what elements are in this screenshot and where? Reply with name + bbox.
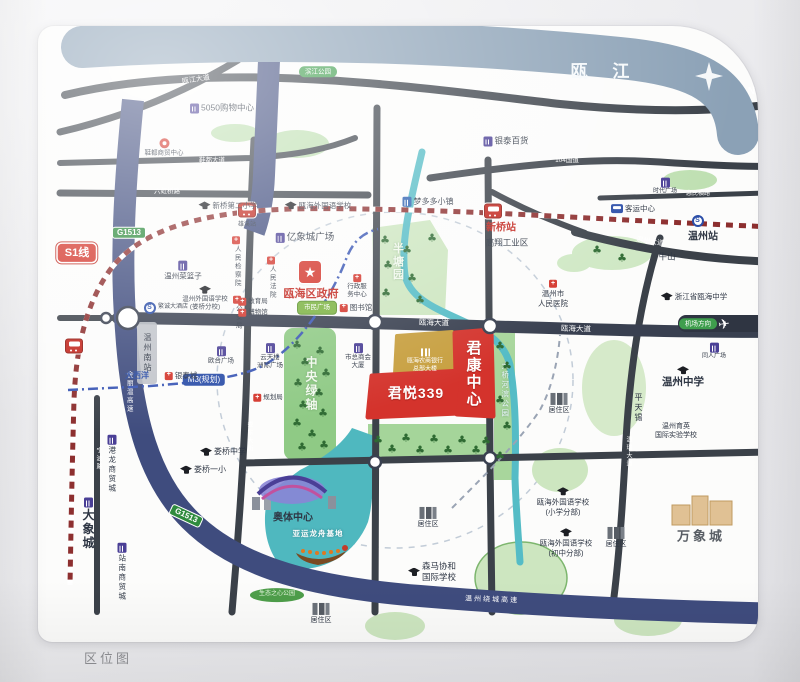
poi-planning-bureau: 规划局: [253, 394, 283, 402]
residential-label-3: 居住区: [418, 507, 439, 529]
road-label-ouhai-ave-2: 瓯海大道: [561, 324, 591, 335]
road-label-huimin: 惠民横路: [686, 191, 710, 199]
tree-icon: ♣: [429, 433, 439, 446]
train-icon: [65, 339, 83, 354]
poi-5050-mall: 5050购物中心: [190, 102, 254, 113]
tree-icon: ♣: [443, 444, 453, 457]
b-icon: [660, 178, 669, 188]
poi-xinqiao-no2-primary: 新桥第二小学: [199, 201, 258, 211]
olympic-center-label: 奥体中心: [273, 512, 313, 525]
airplane-icon: ✈: [717, 314, 731, 334]
poi-pingtianxi: 平天锡: [634, 393, 642, 423]
tree-icon: ♣: [298, 399, 308, 412]
poi-wenzhou-middle-school: 温州中学: [662, 366, 704, 390]
poi-procuratorate: 人民检察院: [232, 236, 240, 288]
tree-icon: ♣: [502, 360, 512, 373]
tree-icon: ♣: [407, 272, 417, 285]
b-icon: [108, 435, 117, 445]
bg-icon: [551, 393, 568, 405]
poi-gaoxiang-industrial: 高翔工业区: [486, 237, 529, 248]
bantang-park-label: 半塘园: [392, 243, 403, 282]
g1513-badge-south: G1513: [169, 505, 202, 528]
tree-icon: ♣: [457, 434, 467, 447]
poi-louqiao-middle: 娄桥中学: [200, 447, 246, 457]
tree-icon: ♣: [495, 340, 505, 353]
bg-icon: [420, 507, 437, 519]
poi-senma-xiehe-school: 森马协和 国际学校: [408, 561, 456, 583]
cap-icon: [285, 202, 297, 211]
poi-zhannan-trade-city: 站南商贸城: [118, 543, 127, 602]
compass: N: [732, 86, 758, 138]
tree-icon: ♣: [402, 244, 412, 257]
poi-peoples-hospital: 温州市 人民医院: [538, 280, 568, 309]
b-icon: [217, 346, 226, 356]
river-name: 瓯 江: [561, 61, 640, 83]
road-label-ouhai-ave-1: 瓯海大道: [419, 318, 449, 329]
poi-ganglong-trade-city: 港龙商贸城: [108, 435, 117, 494]
redc-icon: [159, 138, 169, 148]
tree-icon: ♣: [318, 407, 328, 420]
xiongxi-station-label: 雄溪站: [238, 222, 256, 230]
poi-foreign-school-primary: 瓯海外国语学校 (小学分部): [537, 487, 590, 517]
wenzhou-south-station-label: 温州南站: [143, 333, 151, 373]
bg-icon: [313, 603, 330, 615]
poi-niushan: 牛山: [658, 251, 675, 262]
tree-icon: ♣: [373, 434, 383, 447]
road-label-wenrui: 温瑞大道: [625, 436, 631, 468]
cap-icon: [199, 286, 211, 295]
tree-icon: ♣: [297, 441, 307, 454]
poi-foreign-school-junior: 瓯海外国语学校 (初中分部): [540, 528, 593, 558]
tree-icon: ♣: [321, 367, 331, 380]
b-icon: [276, 233, 285, 243]
poi-louqiao-primary: 娄桥一小: [180, 465, 226, 475]
tree-icon: ♣: [401, 432, 411, 445]
map-caption: 区位图: [84, 648, 132, 667]
b-icon: [354, 343, 363, 353]
poi-library: 图书馆: [340, 303, 373, 313]
cap-icon: [200, 447, 212, 456]
tree-icon: ♣: [471, 444, 481, 457]
tree-icon: ♣: [293, 377, 303, 390]
tree-icon: ♣: [415, 444, 425, 457]
red-icon: [549, 280, 557, 288]
map-labels-layer: 瓯 江瓯江大道鞋都大道六虹桥路104国道惠民横路温州大道瓯海大道瓯海大道温瑞大道…: [38, 26, 758, 642]
bb-icon: [403, 197, 412, 207]
b-icon: [190, 103, 199, 113]
poi-bus-terminal: 客运中心: [611, 204, 655, 214]
tree-icon: ♣: [383, 259, 393, 272]
cap-icon: [408, 568, 420, 577]
poi-xiedu-center: 鞋都商贸中心: [145, 138, 184, 157]
district-gov-label: 瓯海区政府: [284, 287, 339, 301]
xinqiao-station-label: 新桥站: [486, 222, 516, 235]
poi-yuntianlou: 云天楼 洲际广场: [257, 343, 283, 371]
train-icon: [484, 204, 502, 219]
poi-yuying-school: 温州育英 国际实验学校: [655, 422, 697, 440]
tree-icon: ♣: [387, 443, 397, 456]
bus-icon: [611, 205, 623, 214]
poi-fancheng-hotel: 繁诚大酒店: [144, 302, 188, 314]
airport-direction-badge: 机场方向: [679, 318, 717, 329]
s1-line-badge: S1线: [58, 244, 96, 262]
residential-label-4: 居住区: [311, 603, 332, 625]
tree-icon: ♣: [495, 394, 505, 407]
residential-label-1: 居住区: [549, 393, 570, 415]
bw-icon: [420, 348, 429, 356]
tree-icon: ♣: [495, 450, 505, 463]
poi-yixiangcheng-plaza: 亿象城广场: [276, 232, 335, 244]
poi-tongren-plaza: 同人广场: [702, 343, 726, 362]
park-badge-binjiang: 滨江公园: [299, 66, 337, 77]
poi-admin-center: 行政服 务中心: [347, 274, 367, 300]
cap-icon: [560, 528, 572, 537]
junyue-339-label: 君悦339: [388, 384, 444, 402]
road-label-xiedu: 鞋都大道: [199, 157, 225, 165]
red-icon: [232, 236, 240, 244]
district-gov-icon: [299, 261, 321, 283]
poi-ouhai-middle-school: 浙江省瓯海中学: [661, 292, 728, 302]
poi-mengduoduo-town: 梦多多小镇: [403, 197, 454, 207]
tree-icon: ♣: [319, 439, 329, 452]
red-icon: [253, 394, 261, 402]
eco-park-badge: 生态之心公园: [250, 588, 304, 602]
poi-outai-plaza: 欧台广场: [208, 346, 234, 365]
tree-icon: ♣: [292, 417, 302, 430]
g1513-badge-north: G1513: [113, 228, 145, 238]
compass-star-icon: [694, 60, 724, 94]
red-icon: [340, 304, 348, 312]
poi-museum: 博物馆: [238, 309, 268, 317]
photo-of-location-map: 瓯 江瓯江大道鞋都大道六虹桥路104国道惠民横路温州大道瓯海大道瓯海大道温瑞大道…: [0, 0, 800, 682]
compass-letter: N: [732, 86, 758, 98]
tree-icon: ♣: [380, 234, 390, 247]
road-label-raocheng: 温州绕城高速: [465, 595, 519, 606]
bank-parcel-label: 瓯海农商银行 总部大楼: [407, 348, 443, 373]
junkang-center-label: 君康中心: [466, 340, 481, 408]
cap-icon: [557, 487, 569, 496]
map-canvas: 瓯 江瓯江大道鞋都大道六虹桥路104国道惠民横路温州大道瓯海大道瓯海大道温瑞大道…: [38, 26, 758, 642]
b-icon: [266, 343, 275, 353]
red-icon: [353, 274, 361, 282]
civic-square-badge: 市民广场: [298, 302, 336, 314]
poi-court: 人民法院: [267, 257, 275, 300]
road-label-liuhongqiao: 六虹桥路: [154, 188, 180, 196]
poi-foreign-school-louqiao: 温州外国语学校 (娄桥分校): [182, 286, 228, 313]
b-icon: [118, 543, 127, 553]
tree-icon: ♣: [502, 420, 512, 433]
wenzhou-station-icon: [692, 215, 704, 227]
road-label-wenzhou-ave: 温州大道: [635, 235, 664, 248]
tree-icon: ♣: [381, 287, 391, 300]
poi-ouhai-foreign-school: 瓯海外国语学校: [285, 201, 352, 211]
b-icon: [179, 261, 188, 271]
tree-icon: ♣: [415, 294, 425, 307]
wenzhou-south-station-icon: [65, 339, 83, 354]
poi-chamber-tower: 市总商会 大厦: [345, 343, 371, 371]
tree-icon: ♣: [427, 232, 437, 245]
tree-icon: ♣: [292, 339, 302, 352]
red-icon: [165, 372, 173, 380]
tree-icon: ♣: [592, 244, 602, 257]
xinqiao-station-icon: [484, 204, 502, 219]
dragon-boat-base-label: 亚运龙舟基地: [293, 529, 344, 539]
poi-daxiyang: 大西洋: [125, 371, 149, 381]
poi-education-bureau: 教育局: [238, 298, 268, 306]
road-label-ningbo: 宁波路: [95, 447, 101, 471]
tree-icon: ♣: [315, 345, 325, 358]
cap-icon: [199, 202, 211, 211]
bg-icon: [608, 527, 625, 539]
tree-icon: ♣: [300, 356, 310, 369]
b-icon: [483, 136, 492, 146]
road-label-g104: 104国道: [555, 157, 579, 165]
cap-icon: [180, 465, 192, 474]
poi-shidai-plaza: 时代广场: [653, 178, 677, 197]
poi-daxiangcheng: 大象城: [82, 498, 94, 551]
b-icon: [709, 343, 718, 353]
b-icon: [84, 498, 93, 508]
tree-icon: ♣: [617, 252, 627, 265]
poi-yintaicheng: 银泰城: [165, 371, 198, 381]
star-icon: [299, 261, 321, 283]
tree-icon: ♣: [314, 387, 324, 400]
road-label-loudong: 娄东大街: [246, 421, 252, 453]
cap-icon: [677, 366, 689, 375]
red-icon: [238, 309, 246, 317]
red-icon: [267, 257, 275, 265]
metro-icon: [692, 215, 704, 227]
tree-icon: ♣: [307, 428, 317, 441]
metro-icon: [144, 302, 156, 314]
poi-yintai-dept-store: 银泰百货: [483, 135, 528, 146]
mixc-label: 万象城: [677, 529, 725, 546]
cap-icon: [661, 293, 673, 302]
red-icon: [238, 298, 246, 306]
poi-cailanzi: 温州菜篮子: [164, 261, 202, 282]
road-label-oujiang: 瓯江大道: [181, 73, 210, 86]
tree-icon: ♣: [481, 435, 491, 448]
residential-label-2: 居住区: [606, 527, 627, 549]
wenzhou-station-label: 温州站: [688, 231, 718, 244]
